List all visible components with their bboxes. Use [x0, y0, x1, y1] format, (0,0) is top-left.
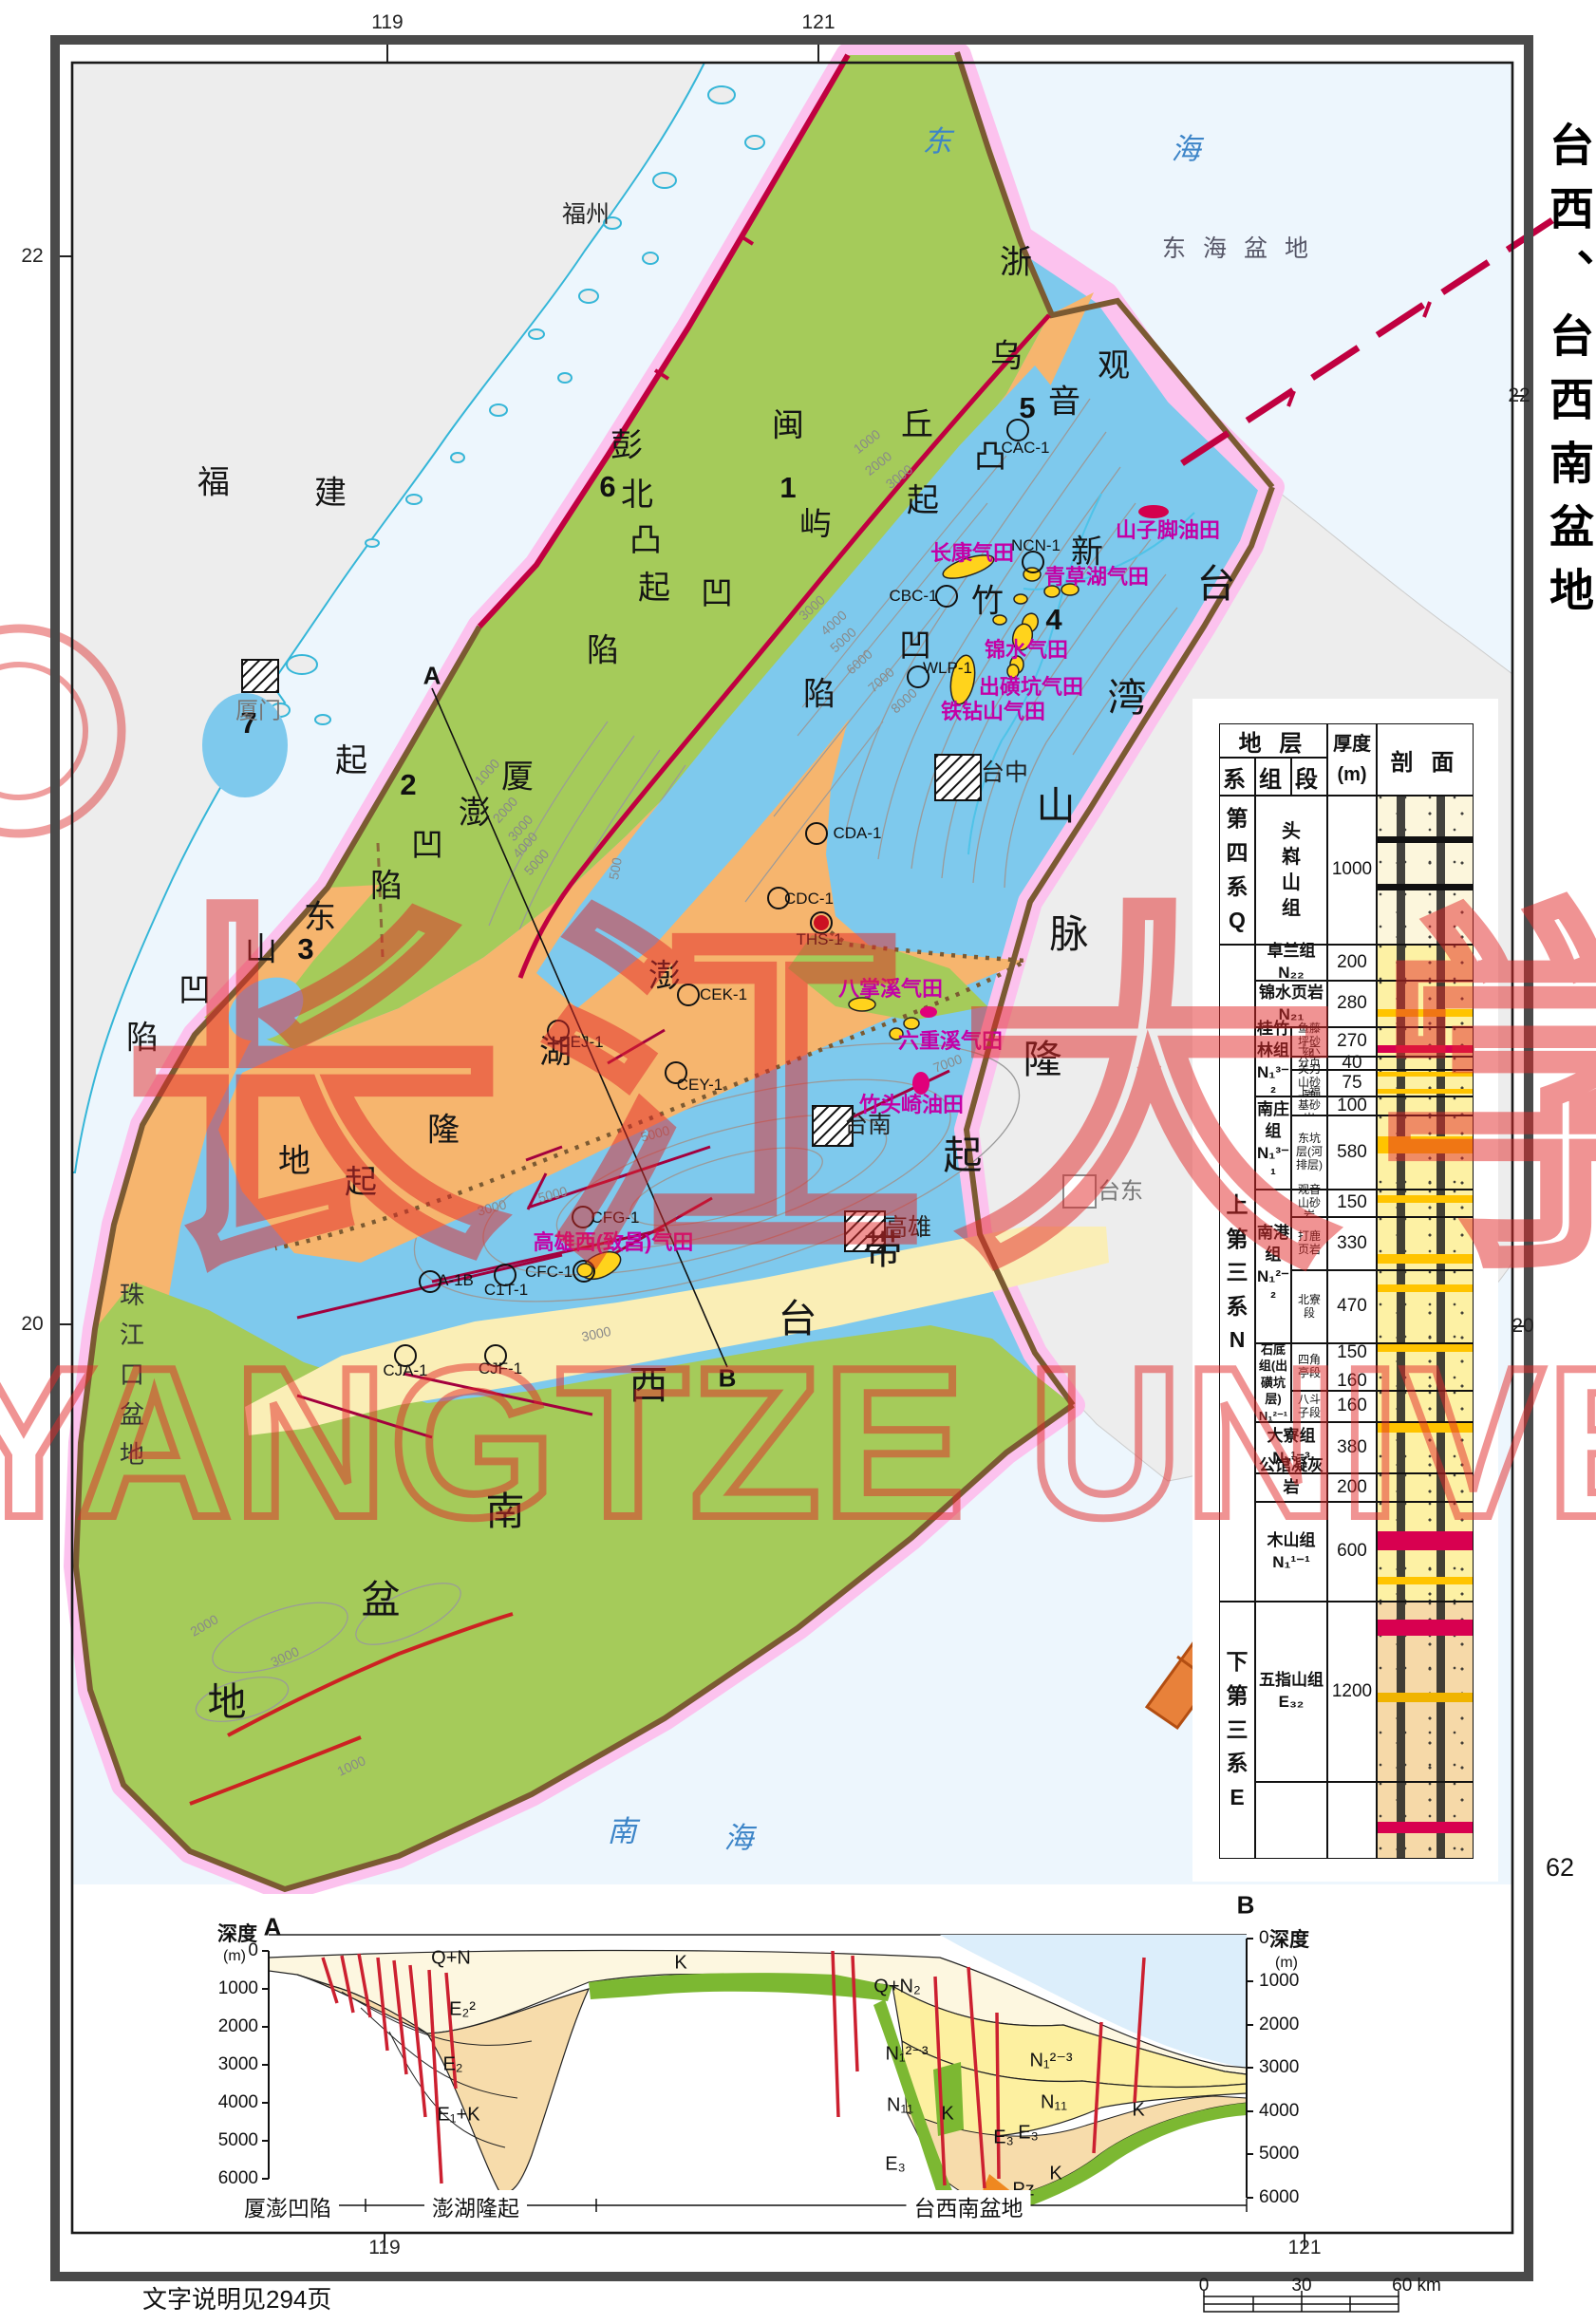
scanned-atlas-page: 11912111912122222020福州福建浙闽东海东海盆地南海珠江口盆地乌…	[0, 0, 1596, 2324]
lithology-cell	[1377, 1270, 1474, 1343]
member-上福基砂岩: 上福基砂岩	[1291, 1096, 1327, 1115]
lithology-cell	[1377, 945, 1474, 981]
lithology-band	[1378, 1089, 1473, 1094]
lithology-cell	[1377, 1027, 1474, 1057]
lithology-band	[1378, 1009, 1473, 1017]
lithology-cell	[1377, 1115, 1474, 1190]
thickness-cell: 470	[1327, 1270, 1377, 1343]
group-木山组: 木山组 N₁¹⁻¹	[1255, 1502, 1327, 1602]
lithology-band	[1378, 1344, 1473, 1352]
lithology-cell	[1377, 1070, 1474, 1096]
member-八斗子段: 八斗子段	[1291, 1391, 1327, 1422]
lithology-band	[1378, 1423, 1473, 1433]
lithology-cell	[1377, 1782, 1474, 1859]
thickness-cell: 150 160	[1327, 1343, 1377, 1391]
system-Q: 第 四 系 Q	[1219, 796, 1255, 945]
lithology-band	[1378, 1531, 1473, 1550]
group-empty	[1255, 1782, 1327, 1859]
lithology-pattern	[1378, 1097, 1473, 1115]
blue-patch-7	[202, 693, 288, 797]
header-thickness: 厚度 (m)	[1327, 723, 1377, 796]
thickness-cell: 580	[1327, 1115, 1377, 1190]
scale-bar	[1204, 2291, 1399, 2312]
header-dicengcéng: 地 层	[1219, 723, 1327, 758]
page-number: 62	[1546, 1853, 1574, 1883]
member-观音山砂岩: 观音山砂岩	[1291, 1190, 1327, 1217]
lithology-band	[1378, 1195, 1473, 1203]
header-duan: 段	[1291, 758, 1327, 796]
lithology-cell	[1377, 1422, 1474, 1473]
thickness-cell: 200	[1327, 1473, 1377, 1502]
group-南庄组: 南庄组 N₁³⁻¹	[1255, 1096, 1291, 1190]
lithology-cell	[1377, 1473, 1474, 1502]
lithology-band	[1378, 1136, 1473, 1153]
group-桂竹林组: 桂竹林组 N₁³⁻²	[1255, 1027, 1291, 1096]
system-N: 上 第 三 系 N	[1219, 945, 1255, 1602]
lithology-cell	[1377, 1602, 1474, 1782]
lithology-band	[1378, 1254, 1473, 1264]
lithology-pattern	[1378, 1058, 1473, 1069]
lithology-pattern	[1378, 982, 1473, 1026]
lithology-pattern	[1378, 946, 1473, 980]
thickness-cell: 1000	[1327, 796, 1377, 945]
lithology-pattern	[1378, 797, 1473, 944]
header-zu: 组	[1255, 758, 1291, 796]
lithology-band	[1378, 1822, 1473, 1833]
thickness-cell: 150	[1327, 1190, 1377, 1217]
thickness-cell: 200	[1327, 945, 1377, 981]
lithology-cell	[1377, 981, 1474, 1027]
member-四角亭段: 四角亭段	[1291, 1343, 1327, 1391]
lithology-pattern	[1378, 1474, 1473, 1501]
lithology-cell	[1377, 1096, 1474, 1115]
lithology-band	[1378, 1072, 1473, 1077]
lithology-band	[1378, 1045, 1473, 1053]
lithology-cell	[1377, 796, 1474, 945]
thickness-cell: 100	[1327, 1096, 1377, 1115]
group-五指山组: 五指山组 E₃₂	[1255, 1602, 1327, 1782]
lithology-cell	[1377, 1217, 1474, 1270]
lithology-cell	[1377, 1057, 1474, 1070]
lithology-band	[1378, 1693, 1473, 1702]
lithology-pattern	[1378, 1271, 1473, 1342]
group-头嵙山组: 头 嵙 山 组	[1255, 796, 1327, 945]
lithology-band	[1378, 836, 1473, 843]
thickness-cell: 380	[1327, 1422, 1377, 1473]
header-xi: 系	[1219, 758, 1255, 796]
thickness-cell: 280	[1327, 981, 1377, 1027]
lithology-band	[1378, 1284, 1473, 1292]
lithology-band	[1378, 1577, 1473, 1584]
thickness-cell: 1200	[1327, 1602, 1377, 1782]
thickness-cell: 160	[1327, 1391, 1377, 1422]
member-打鹿页岩: 打鹿页岩	[1291, 1217, 1327, 1270]
lithology-cell	[1377, 1391, 1474, 1422]
member-北寮段: 北寮段	[1291, 1270, 1327, 1343]
group-公馆凝灰岩: 公馆凝灰岩 N₁¹⁻²	[1255, 1473, 1327, 1502]
lithology-pattern	[1378, 1503, 1473, 1601]
lithology-band	[1378, 884, 1473, 890]
system-E: 下 第 三 系 E	[1219, 1602, 1255, 1859]
thickness-cell	[1327, 1782, 1377, 1859]
lithology-pattern	[1378, 1392, 1473, 1421]
lithology-pattern	[1378, 1783, 1473, 1858]
thickness-cell: 330	[1327, 1217, 1377, 1270]
group-石底组(出磺坑层): 石底组(出磺坑层) N₁²⁻¹	[1255, 1343, 1291, 1422]
group-卓兰组: 卓兰组 N₂₂	[1255, 945, 1327, 981]
thickness-cell: 600	[1327, 1502, 1377, 1602]
group-南港组: 南港组 N₁²⁻²	[1255, 1190, 1291, 1343]
footer-note: 文字说明见294页	[142, 2280, 331, 2315]
lithology-band	[1378, 1620, 1473, 1636]
lithology-cell	[1377, 1343, 1474, 1391]
lithology-cell	[1377, 1502, 1474, 1602]
header-profile: 剖 面	[1377, 723, 1474, 796]
member-东坑层(河排层): 东坑层(河排层)	[1291, 1115, 1327, 1190]
lithology-cell	[1377, 1190, 1474, 1217]
page-title: 台西、台西南盆地	[1534, 122, 1596, 630]
